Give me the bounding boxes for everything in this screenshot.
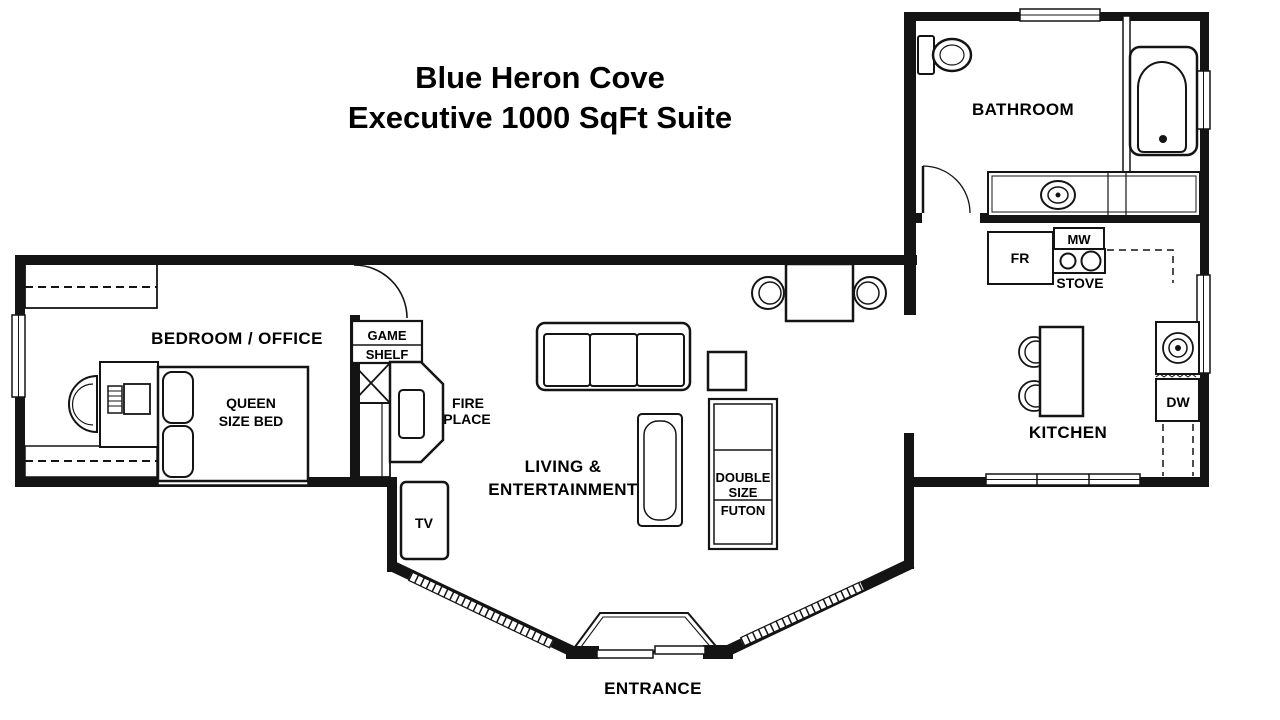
queen-bed-label-1: QUEEN xyxy=(226,395,276,411)
dining-table xyxy=(786,264,853,321)
game-shelf-label-1: GAME xyxy=(368,328,407,343)
living-entertainment: LIVING & ENTERTAINMENT GAME SHELF FIRE P… xyxy=(352,264,886,559)
stove-label: STOVE xyxy=(1056,275,1103,291)
fireplace-label-2: PLACE xyxy=(443,411,490,427)
dishwasher: DW xyxy=(1156,379,1199,421)
bathroom-door xyxy=(923,166,970,213)
desk-chair xyxy=(69,376,97,432)
dining-chair-inner xyxy=(759,282,781,304)
window-bathroom-right xyxy=(1197,71,1210,129)
lower-cabinets-dashed xyxy=(1163,424,1193,476)
upper-cabinets-dashed xyxy=(1107,250,1173,283)
window-bathroom-top xyxy=(1020,9,1100,21)
window-left-bay xyxy=(408,572,554,648)
bathroom-label: BATHROOM xyxy=(972,100,1074,119)
tv-label: TV xyxy=(415,515,434,531)
window-bedroom-left xyxy=(12,315,25,397)
entrance-door-left xyxy=(597,650,653,658)
queen-bed-label-2: SIZE BED xyxy=(219,413,284,429)
title-line-2: Executive 1000 SqFt Suite xyxy=(348,100,732,135)
floor-plan-page: Blue Heron Cove Executive 1000 SqFt Suit… xyxy=(0,0,1280,720)
tub-drain xyxy=(1159,135,1167,143)
fireplace xyxy=(390,362,443,462)
living-label-2: ENTERTAINMENT xyxy=(488,480,638,499)
futon-label-1: DOUBLE xyxy=(716,470,771,485)
fireplace-label-1: FIRE xyxy=(452,395,484,411)
closet-top xyxy=(25,264,157,308)
microwave-label: MW xyxy=(1067,232,1091,247)
dining-chair-inner xyxy=(857,282,879,304)
side-table xyxy=(708,352,746,390)
bedroom-office: BEDROOM / OFFICE QUEEN xyxy=(25,264,407,481)
bathroom-door-arc xyxy=(923,166,970,213)
sofa xyxy=(537,323,690,390)
bedroom-office-label: BEDROOM / OFFICE xyxy=(151,329,323,348)
futon: DOUBLE SIZE FUTON xyxy=(709,399,777,549)
fridge: FR xyxy=(988,232,1053,284)
wall-bath-divider-stub xyxy=(904,213,922,223)
living-label-1: LIVING & xyxy=(525,457,602,476)
tv: TV xyxy=(401,482,448,559)
kitchen-label: KITCHEN xyxy=(1029,423,1107,442)
entrance-door-right xyxy=(655,646,705,654)
queen-bed: QUEEN SIZE BED xyxy=(158,367,308,481)
game-shelf-label-2: SHELF xyxy=(366,347,409,362)
closet-bottom xyxy=(25,446,157,477)
bathroom: BATHROOM xyxy=(918,36,1200,216)
dishwasher-label: DW xyxy=(1166,394,1190,410)
futon-label-3: FUTON xyxy=(721,503,766,518)
window-kitchen-bottom xyxy=(986,474,1140,485)
plan-title: Blue Heron Cove Executive 1000 SqFt Suit… xyxy=(348,60,732,135)
game-shelf: GAME SHELF xyxy=(352,321,422,363)
toilet xyxy=(918,36,971,74)
bathtub xyxy=(1130,47,1197,155)
lounge-chair xyxy=(638,414,682,526)
wall-left-lower xyxy=(387,477,397,572)
kitchen-sink-counter xyxy=(1156,322,1199,377)
vanity-counter xyxy=(988,172,1200,216)
kitchen: KITCHEN FR MW STOVE DW xyxy=(988,228,1199,476)
wall-bath-left xyxy=(904,12,916,315)
window-right-bay xyxy=(740,582,864,646)
floor-plan-svg: Blue Heron Cove Executive 1000 SqFt Suit… xyxy=(0,0,1280,720)
wall-right-lower xyxy=(904,433,914,569)
bedroom-door-arc xyxy=(354,265,407,318)
dining-table-set xyxy=(752,264,886,321)
kitchen-table-set xyxy=(1019,327,1083,416)
title-line-1: Blue Heron Cove xyxy=(415,60,665,95)
stove: STOVE xyxy=(1053,249,1105,291)
futon-label-2: SIZE xyxy=(729,485,758,500)
kitchen-table xyxy=(1040,327,1083,416)
wall-entrance-left-stub xyxy=(566,646,599,659)
microwave: MW xyxy=(1054,228,1104,249)
fridge-label: FR xyxy=(1011,250,1030,266)
entrance-label: ENTRANCE xyxy=(604,679,702,698)
